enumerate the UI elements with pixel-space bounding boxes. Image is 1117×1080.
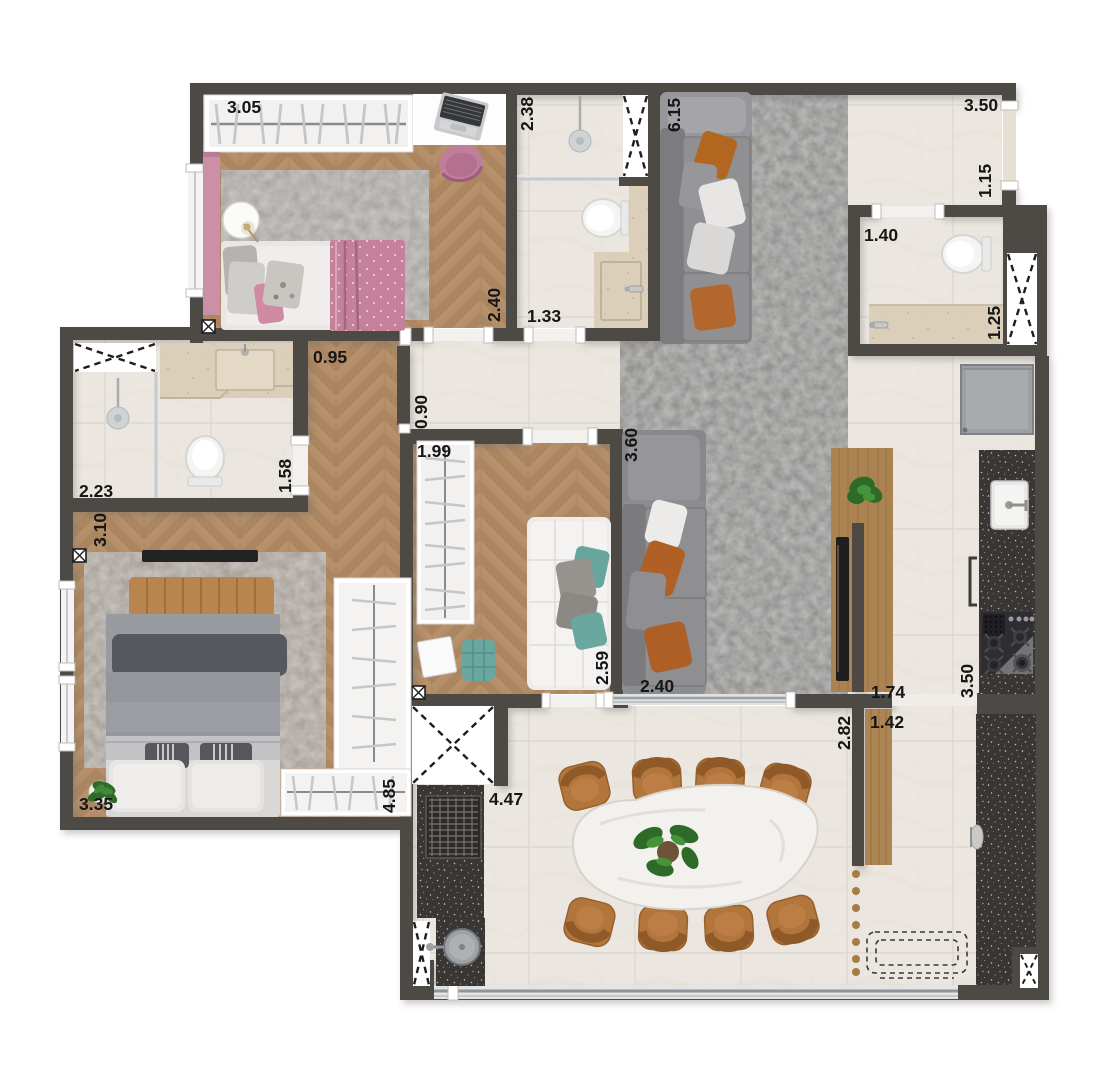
svg-text:4.47: 4.47: [489, 789, 523, 809]
svg-text:4.85: 4.85: [379, 779, 399, 813]
svg-text:1.25: 1.25: [984, 306, 1004, 340]
svg-text:1.42: 1.42: [870, 712, 904, 732]
svg-text:2.82: 2.82: [834, 716, 854, 750]
svg-text:1.58: 1.58: [275, 459, 295, 493]
svg-text:1.33: 1.33: [527, 306, 561, 326]
svg-text:1.99: 1.99: [417, 441, 451, 461]
svg-text:2.23: 2.23: [79, 481, 113, 501]
svg-text:0.90: 0.90: [411, 395, 431, 429]
svg-text:2.38: 2.38: [517, 97, 537, 131]
svg-text:3.60: 3.60: [621, 428, 641, 462]
svg-text:1.40: 1.40: [864, 225, 898, 245]
svg-text:2.40: 2.40: [640, 676, 674, 696]
svg-text:2.40: 2.40: [484, 288, 504, 322]
svg-text:1.15: 1.15: [975, 164, 995, 198]
svg-text:3.05: 3.05: [227, 97, 261, 117]
svg-text:1.74: 1.74: [871, 682, 905, 702]
svg-text:6.15: 6.15: [664, 98, 684, 132]
svg-text:2.59: 2.59: [592, 651, 612, 685]
svg-text:0.95: 0.95: [313, 347, 347, 367]
svg-text:3.50: 3.50: [964, 95, 998, 115]
svg-text:3.10: 3.10: [90, 513, 110, 547]
svg-text:3.50: 3.50: [957, 664, 977, 698]
svg-text:3.35: 3.35: [79, 794, 113, 814]
